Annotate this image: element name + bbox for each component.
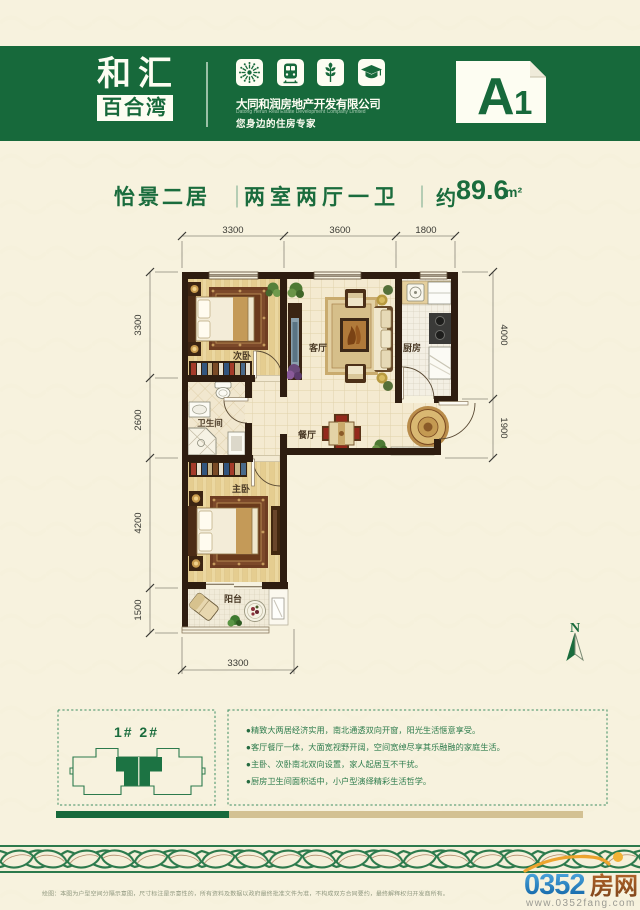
svg-text:客厅: 客厅 [308, 342, 327, 353]
svg-text:www.0352fang.com: www.0352fang.com [525, 898, 636, 909]
svg-text:1500: 1500 [133, 599, 144, 620]
svg-text:卫生间: 卫生间 [197, 418, 223, 428]
svg-text:0352: 0352 [524, 869, 585, 901]
svg-text:主卧: 主卧 [232, 483, 250, 494]
svg-text:厨房: 厨房 [403, 342, 421, 353]
svg-text:餐厅: 餐厅 [297, 429, 316, 440]
svg-text:次卧: 次卧 [233, 350, 251, 361]
svg-text:3600: 3600 [329, 225, 350, 236]
svg-text:1900: 1900 [498, 417, 509, 438]
svg-text:3300: 3300 [227, 658, 248, 669]
svg-text:3300: 3300 [222, 225, 243, 236]
svg-text:房网: 房网 [590, 872, 638, 900]
svg-text:4200: 4200 [133, 512, 144, 533]
svg-text:阳台: 阳台 [224, 593, 242, 604]
svg-text:3300: 3300 [133, 314, 144, 335]
svg-text:2600: 2600 [133, 409, 144, 430]
svg-text:4000: 4000 [498, 324, 509, 345]
svg-text:1800: 1800 [415, 225, 436, 236]
